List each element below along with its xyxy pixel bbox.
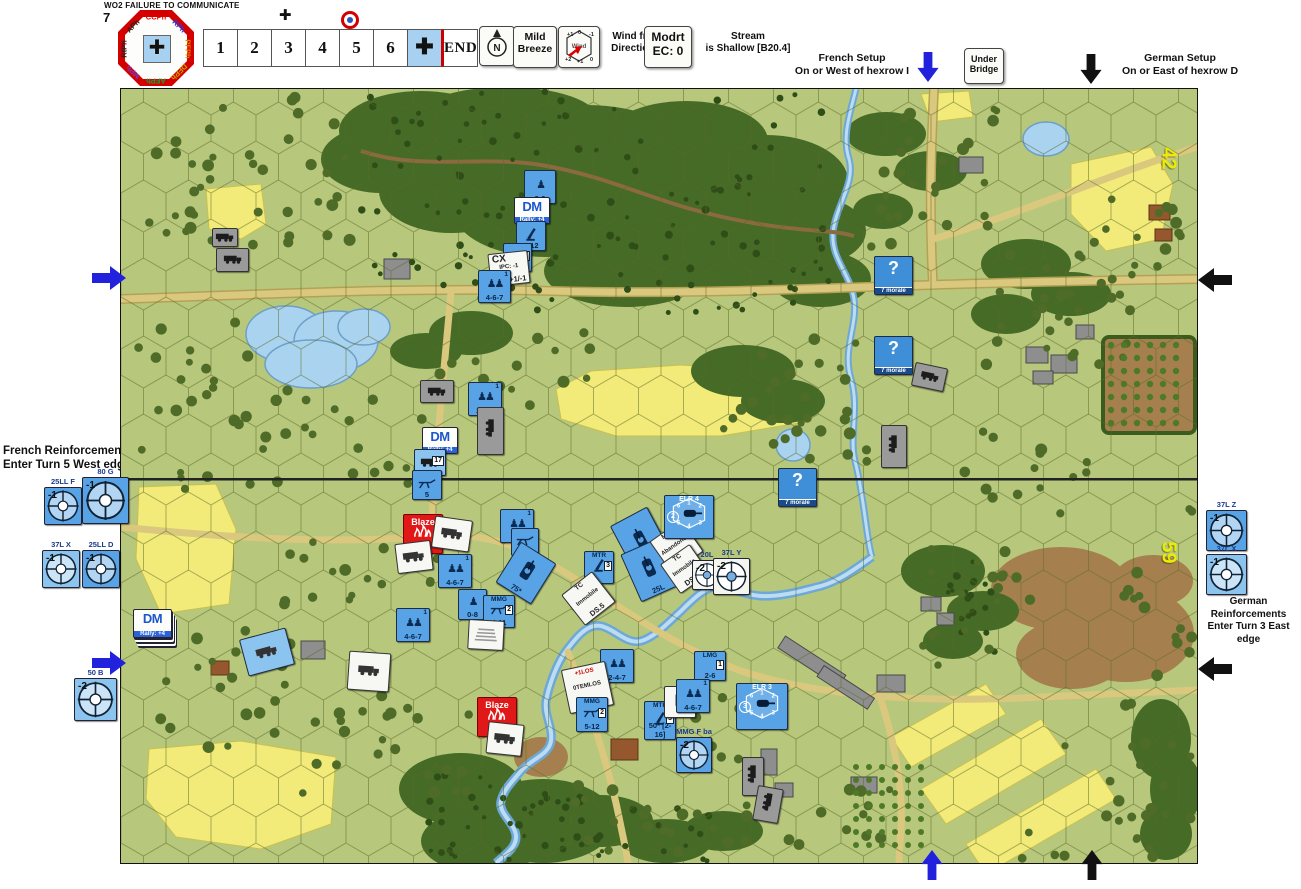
wreck-counter[interactable] xyxy=(485,721,524,757)
gun-crosshair-icon: -2 xyxy=(74,678,117,721)
counter-bottom-label: 0-8 xyxy=(459,610,486,619)
ec-counter-label: Modrt EC: 0 xyxy=(645,27,691,59)
counter-bottom-label: 7 morale xyxy=(875,287,912,294)
board-edge-line xyxy=(121,478,1197,481)
svg-text:+1: +1 xyxy=(567,32,573,38)
counter-bottom-label: 4-6-7 xyxy=(479,293,510,302)
german-vehicle-counter[interactable] xyxy=(420,380,454,403)
french-turn-marker[interactable] xyxy=(341,11,359,29)
gun-crosshair-icon: -1 xyxy=(82,550,120,588)
french-mg-counter[interactable]: 5 xyxy=(412,470,442,500)
svg-text:0: 0 xyxy=(590,57,593,63)
gun-label: MMG F ba xyxy=(676,727,712,737)
french-mmg-counter[interactable]: MMG5-122 xyxy=(576,697,608,732)
french-tank-turret-counter[interactable]: ELR 46125432 xyxy=(664,495,714,539)
turn-track-german-cross-cell: ✚ xyxy=(408,29,444,67)
gun-counter[interactable]: 37L X-1 xyxy=(1206,554,1247,595)
gun-counter[interactable]: 50 B-2 xyxy=(74,678,117,721)
counter-bottom-label: 7 morale xyxy=(875,367,912,374)
gun-counter[interactable]: 25LL F-1 xyxy=(44,487,82,525)
turn-track-cell-5: 5 xyxy=(340,29,374,67)
truck-icon xyxy=(427,385,447,396)
german-vehicle-counter[interactable] xyxy=(212,228,238,247)
counter-bottom-label: 50* [2-16] xyxy=(645,721,675,739)
turn-track-cell-4: 4 xyxy=(306,29,340,67)
counter-bottom-label: 5 xyxy=(413,490,441,499)
german-turn-marker[interactable]: ✚ xyxy=(279,8,292,23)
flame-icon xyxy=(486,707,508,722)
svg-text:+1: +1 xyxy=(577,59,583,64)
counter-bottom-label: 7 morale xyxy=(779,499,816,506)
french-squad-counter[interactable]: ♟♟4-6-71 xyxy=(478,270,511,303)
gun-counter[interactable]: MMG F ba-2 xyxy=(676,737,712,773)
truckdark-icon xyxy=(357,662,382,677)
gun-label: 25LL F xyxy=(51,477,75,487)
tanktop-icon xyxy=(514,555,542,586)
german-vehicle-counter[interactable] xyxy=(881,425,907,468)
soldier1-icon: ♟ xyxy=(469,597,477,608)
map-terrain xyxy=(121,89,1197,863)
truckv-icon xyxy=(884,439,904,450)
counter-badge: 17 xyxy=(432,456,444,466)
soldier2-icon: ♟♟ xyxy=(405,618,421,629)
phase-label-ccph: CCPh xyxy=(146,13,166,22)
counter-bottom-label: 5-12 xyxy=(577,722,607,731)
german-exit-arrow[interactable] xyxy=(1081,850,1103,880)
gun-modifier-value: -1 xyxy=(86,480,95,491)
french-entry-arrow[interactable] xyxy=(92,266,126,290)
pages-icon xyxy=(473,623,500,642)
turn-track: 123456✚END xyxy=(203,29,478,67)
gun-label: 37L X xyxy=(51,540,71,550)
counter-bottom-label: 4-6-7 xyxy=(439,578,471,587)
german-cross-icon: ✚ xyxy=(143,35,171,63)
counter-top-label: ? xyxy=(876,338,911,359)
gun-crosshair-icon: -2 xyxy=(713,558,750,595)
truckv-icon xyxy=(481,423,501,434)
concealment-counter[interactable]: ?7 morale xyxy=(778,468,817,507)
soldier2-icon: ♟♟ xyxy=(609,659,625,670)
gun-modifier-value: -2 xyxy=(696,563,705,574)
french-squad-counter[interactable]: ♟♟4-6-71 xyxy=(676,679,710,713)
french-squad-counter[interactable]: ♟♟4-6-71 xyxy=(438,554,472,588)
counter-badge: 2 xyxy=(505,605,513,615)
gun-crosshair-icon: -1 xyxy=(42,550,80,588)
french-tank-turret-counter[interactable]: ELR 36125433 xyxy=(736,683,788,730)
counter-bottom-label: 4-6-7 xyxy=(677,703,709,712)
truckv-icon xyxy=(758,795,780,809)
board-number: 59 xyxy=(1157,541,1180,563)
game-map[interactable]: 42 59 xyxy=(120,88,1198,864)
counter-corner-number: 1 xyxy=(703,680,707,687)
truck-icon xyxy=(215,231,235,242)
german-entry-arrow[interactable] xyxy=(1198,268,1232,292)
turret-facing-number: 3 xyxy=(739,701,751,713)
gun-modifier-value: -1 xyxy=(1210,513,1219,524)
french-setup-arrow[interactable] xyxy=(917,52,939,82)
french-squad-counter[interactable]: ♟♟4-6-71 xyxy=(396,608,430,642)
gun-modifier-value: -2 xyxy=(78,681,87,692)
under-bridge-label: Under Bridge xyxy=(965,49,1003,75)
counter-top-label: ? xyxy=(876,258,911,279)
counter-corner-number: 1 xyxy=(423,609,427,616)
wreck-counter[interactable] xyxy=(431,516,473,553)
counter-top-label: MMG xyxy=(485,596,513,603)
concealment-counter[interactable]: ?7 morale xyxy=(874,256,913,295)
turn-track-cell-2: 2 xyxy=(238,29,272,67)
gun-modifier-value: -1 xyxy=(48,490,57,501)
german-setup-note: German Setup On or East of hexrow D xyxy=(1104,52,1256,78)
phase-label-pfph: PFPh xyxy=(184,39,193,58)
french-lmg-counter[interactable]: LMG2-61 xyxy=(694,651,726,681)
counter-badge: 1 xyxy=(716,660,724,670)
soldier2-icon: ♟♟ xyxy=(487,279,503,290)
truckdark-icon xyxy=(401,547,426,563)
counter-badge: 3 xyxy=(604,561,612,571)
gun-counter[interactable]: 37L X-1 xyxy=(42,550,80,588)
wind-counter[interactable]: Mild Breeze xyxy=(513,26,557,68)
french-setup-note: French Setup On or West of hexrow I xyxy=(782,52,922,78)
stack-marker[interactable] xyxy=(467,619,505,651)
soldier2-icon: ♟♟ xyxy=(685,689,701,700)
flame-icon xyxy=(412,524,434,539)
turn-track-cell-1: 1 xyxy=(203,29,238,67)
turn-number: 7 xyxy=(103,10,110,25)
gun-modifier-value: -1 xyxy=(1210,557,1219,568)
counter-badge: 2 xyxy=(598,708,606,718)
gun-label: 25LL D xyxy=(89,540,114,550)
soldier2-icon: ♟♟ xyxy=(447,564,463,575)
gun-label: 37L Y xyxy=(722,548,742,558)
phase-label-rtph: RtPh xyxy=(120,40,129,58)
phase-label-afph: AFPh xyxy=(146,77,166,86)
gun-modifier-value: -2 xyxy=(717,561,726,572)
wind-direction-counter[interactable]: Wind+10-1+2+10 xyxy=(558,26,600,68)
german-setup-arrow[interactable] xyxy=(1080,54,1102,84)
turret-facing-number: 2 xyxy=(667,511,679,523)
gun-counter[interactable]: 37L Y-2 xyxy=(713,558,750,595)
svg-text:+2: +2 xyxy=(565,57,571,63)
french-entry-arrow[interactable] xyxy=(92,651,126,675)
gun-modifier-value: -2 xyxy=(680,740,689,751)
german-reinforcements-note: German Reinforcements Enter Turn 3 East … xyxy=(1198,596,1299,646)
compass-icon: N xyxy=(482,27,512,61)
gun-label: 37L X xyxy=(1217,544,1237,554)
counter-bottom-label: Rally: +4 xyxy=(134,631,171,637)
soldier2-icon: ♟♟ xyxy=(477,392,493,403)
dm-stack-marker[interactable]: DMRally: +4 xyxy=(133,609,172,638)
french-exit-arrow[interactable] xyxy=(921,850,943,880)
counter-top-label: LMG xyxy=(696,652,724,659)
german-vehicle-counter[interactable] xyxy=(216,248,249,272)
counter-top-label: +1LOS xyxy=(564,665,605,679)
phase-wheel[interactable]: ✚ CCPhRPhPFPhDFPhAFPhMPhRtPhAPh xyxy=(112,6,200,92)
gun-counter[interactable]: 25LL D-1 xyxy=(82,550,120,588)
wind-counter-label: Mild Breeze xyxy=(514,27,556,55)
counter-mid-label: 0TEMLOS xyxy=(565,678,608,693)
turn-track-cell-6: 6 xyxy=(374,29,408,67)
counter-corner-number: 1 xyxy=(465,555,469,562)
gun-counter[interactable]: 80 G-1 xyxy=(82,477,129,524)
gun-label: 80 G xyxy=(97,467,113,477)
vasl-game-window: WO2 FAILURE TO COMMUNICATE 7 ✚ CCPhRPhPF… xyxy=(0,0,1301,889)
gun-crosshair-icon: -2 xyxy=(676,737,712,773)
turn-track-end-cell: END xyxy=(444,29,478,67)
gun-crosshair-icon: -1 xyxy=(44,487,82,525)
counter-corner-number: 1 xyxy=(504,271,508,278)
truckdark-icon xyxy=(493,729,518,744)
wind-hex-icon: Wind+10-1+2+10 xyxy=(561,28,597,64)
ec-counter[interactable]: Modrt EC: 0 xyxy=(644,26,692,68)
truckdark-icon xyxy=(253,641,280,660)
gun-crosshair-icon: -1 xyxy=(82,477,129,524)
gun-modifier-value: -1 xyxy=(46,553,55,564)
counter-top-label: DM xyxy=(516,199,548,214)
counter-top-label: DM xyxy=(424,429,456,444)
counter-top-label: MMG xyxy=(578,698,606,705)
board-number: 42 xyxy=(1157,147,1180,169)
gun-label: 20L xyxy=(701,550,714,560)
gun-label: 37L Z xyxy=(1217,500,1236,510)
german-entry-arrow[interactable] xyxy=(1198,657,1232,681)
truckv-icon xyxy=(743,769,763,780)
truck-icon xyxy=(223,253,243,264)
gun-crosshair-icon: -1 xyxy=(1206,554,1247,595)
svg-text:-1: -1 xyxy=(589,32,594,38)
soldier1-icon: ♟ xyxy=(536,180,544,191)
tanktop-icon xyxy=(636,551,662,582)
turn-track-cell-3: 3 xyxy=(272,29,306,67)
under-bridge-counter[interactable]: Under Bridge xyxy=(964,48,1004,84)
mortar-icon xyxy=(525,227,538,242)
truck-icon xyxy=(919,368,941,383)
gun-modifier-value: -1 xyxy=(86,553,95,564)
counter-bottom-label: 4-6-7 xyxy=(397,632,429,641)
counter-top-label: ? xyxy=(780,470,815,491)
north-compass-counter[interactable]: N xyxy=(479,26,515,66)
concealment-counter[interactable]: ?7 morale xyxy=(874,336,913,375)
counter-corner-number: 1 xyxy=(495,383,499,390)
counter-top-label: DM xyxy=(135,611,170,626)
counter-corner-number: 1 xyxy=(527,510,531,517)
german-vehicle-counter[interactable] xyxy=(477,407,504,455)
dm-marker[interactable]: DMRally: +4 xyxy=(514,197,550,224)
mg-icon xyxy=(417,478,437,489)
wreck-counter[interactable] xyxy=(347,651,392,693)
wreck-counter[interactable] xyxy=(394,540,433,574)
svg-text:0: 0 xyxy=(578,30,581,36)
truckdark-icon xyxy=(439,524,465,540)
svg-text:N: N xyxy=(493,43,500,54)
